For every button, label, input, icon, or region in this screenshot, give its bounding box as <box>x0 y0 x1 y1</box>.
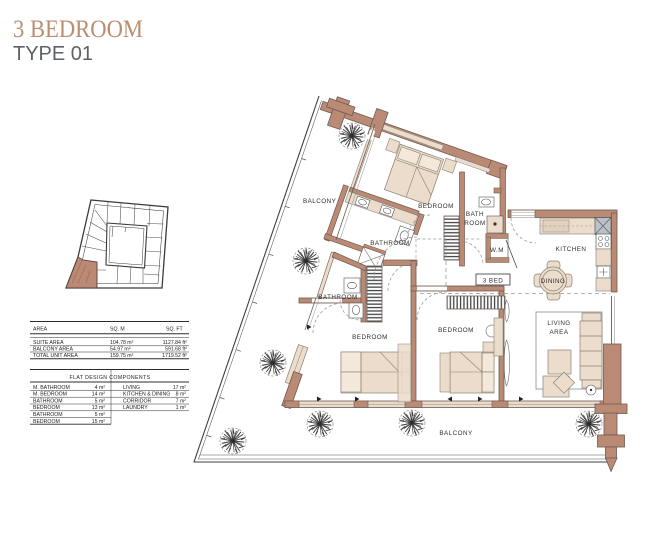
svg-text:8 m²: 8 m² <box>176 392 187 398</box>
svg-text:13 m²: 13 m² <box>92 405 106 411</box>
svg-text:W.M: W.M <box>490 247 504 254</box>
svg-text:LIVING: LIVING <box>123 385 140 391</box>
svg-text:BATHROOM: BATHROOM <box>33 412 63 418</box>
svg-text:FLAT DESIGN COMPONENTS: FLAT DESIGN COMPONENTS <box>70 375 151 381</box>
svg-text:BATHROOM: BATHROOM <box>33 398 63 404</box>
svg-text:104.78 m²: 104.78 m² <box>110 340 134 346</box>
svg-text:BEDROOM: BEDROOM <box>352 334 388 341</box>
svg-text:SUITE AREA: SUITE AREA <box>33 340 64 346</box>
svg-text:AREA: AREA <box>550 329 569 336</box>
svg-text:BALCONY AREA: BALCONY AREA <box>33 346 74 352</box>
svg-text:1127.84 ft²: 1127.84 ft² <box>163 340 188 346</box>
svg-text:BEDROOM: BEDROOM <box>33 419 60 425</box>
svg-text:3 BED: 3 BED <box>483 277 503 284</box>
svg-text:SQ. FT: SQ. FT <box>166 327 184 333</box>
svg-text:591.68 ft²: 591.68 ft² <box>165 346 187 352</box>
svg-text:BEDROOM: BEDROOM <box>33 405 60 411</box>
svg-text:CORRIDOR: CORRIDOR <box>123 398 151 404</box>
svg-text:SQ. M: SQ. M <box>110 327 125 333</box>
svg-text:BEDROOM: BEDROOM <box>438 327 474 334</box>
svg-text:BALCONY: BALCONY <box>303 198 337 205</box>
svg-text:1719.52 ft²: 1719.52 ft² <box>162 353 187 359</box>
svg-text:AREA: AREA <box>33 327 48 333</box>
svg-text:5 m²: 5 m² <box>95 412 106 418</box>
svg-text:17 m²: 17 m² <box>173 385 187 391</box>
svg-text:5 m²: 5 m² <box>95 398 106 404</box>
svg-text:DINING: DINING <box>541 278 566 285</box>
svg-text:54.97 m²: 54.97 m² <box>110 346 131 352</box>
svg-text:ROOM: ROOM <box>464 220 485 227</box>
svg-text:LAUNDRY: LAUNDRY <box>123 405 148 411</box>
svg-text:BALCONY: BALCONY <box>439 430 473 437</box>
svg-text:KITCHEN & DINING: KITCHEN & DINING <box>123 392 170 398</box>
svg-text:14 m²: 14 m² <box>92 392 106 398</box>
svg-text:BATHROOM: BATHROOM <box>318 294 358 301</box>
svg-text:KITCHEN: KITCHEN <box>556 246 587 253</box>
svg-text:7 m²: 7 m² <box>176 398 187 404</box>
svg-text:4 m²: 4 m² <box>95 385 106 391</box>
svg-text:LIVING: LIVING <box>547 320 570 327</box>
svg-text:3 BEDROOM: 3 BEDROOM <box>13 16 143 43</box>
svg-text:TYPE 01: TYPE 01 <box>13 43 93 65</box>
svg-text:M. BATHROOM: M. BATHROOM <box>33 385 70 391</box>
svg-text:15 m²: 15 m² <box>92 419 106 425</box>
svg-text:BEDROOM: BEDROOM <box>418 203 454 210</box>
svg-text:BATH: BATH <box>466 211 484 218</box>
svg-text:159.75 m²: 159.75 m² <box>110 353 134 359</box>
svg-text:M. BEDROOM: M. BEDROOM <box>33 392 67 398</box>
svg-text:1 m²: 1 m² <box>176 405 187 411</box>
svg-text:BATHROOM: BATHROOM <box>370 240 410 247</box>
svg-text:TOTAL UNIT AREA: TOTAL UNIT AREA <box>33 353 78 359</box>
